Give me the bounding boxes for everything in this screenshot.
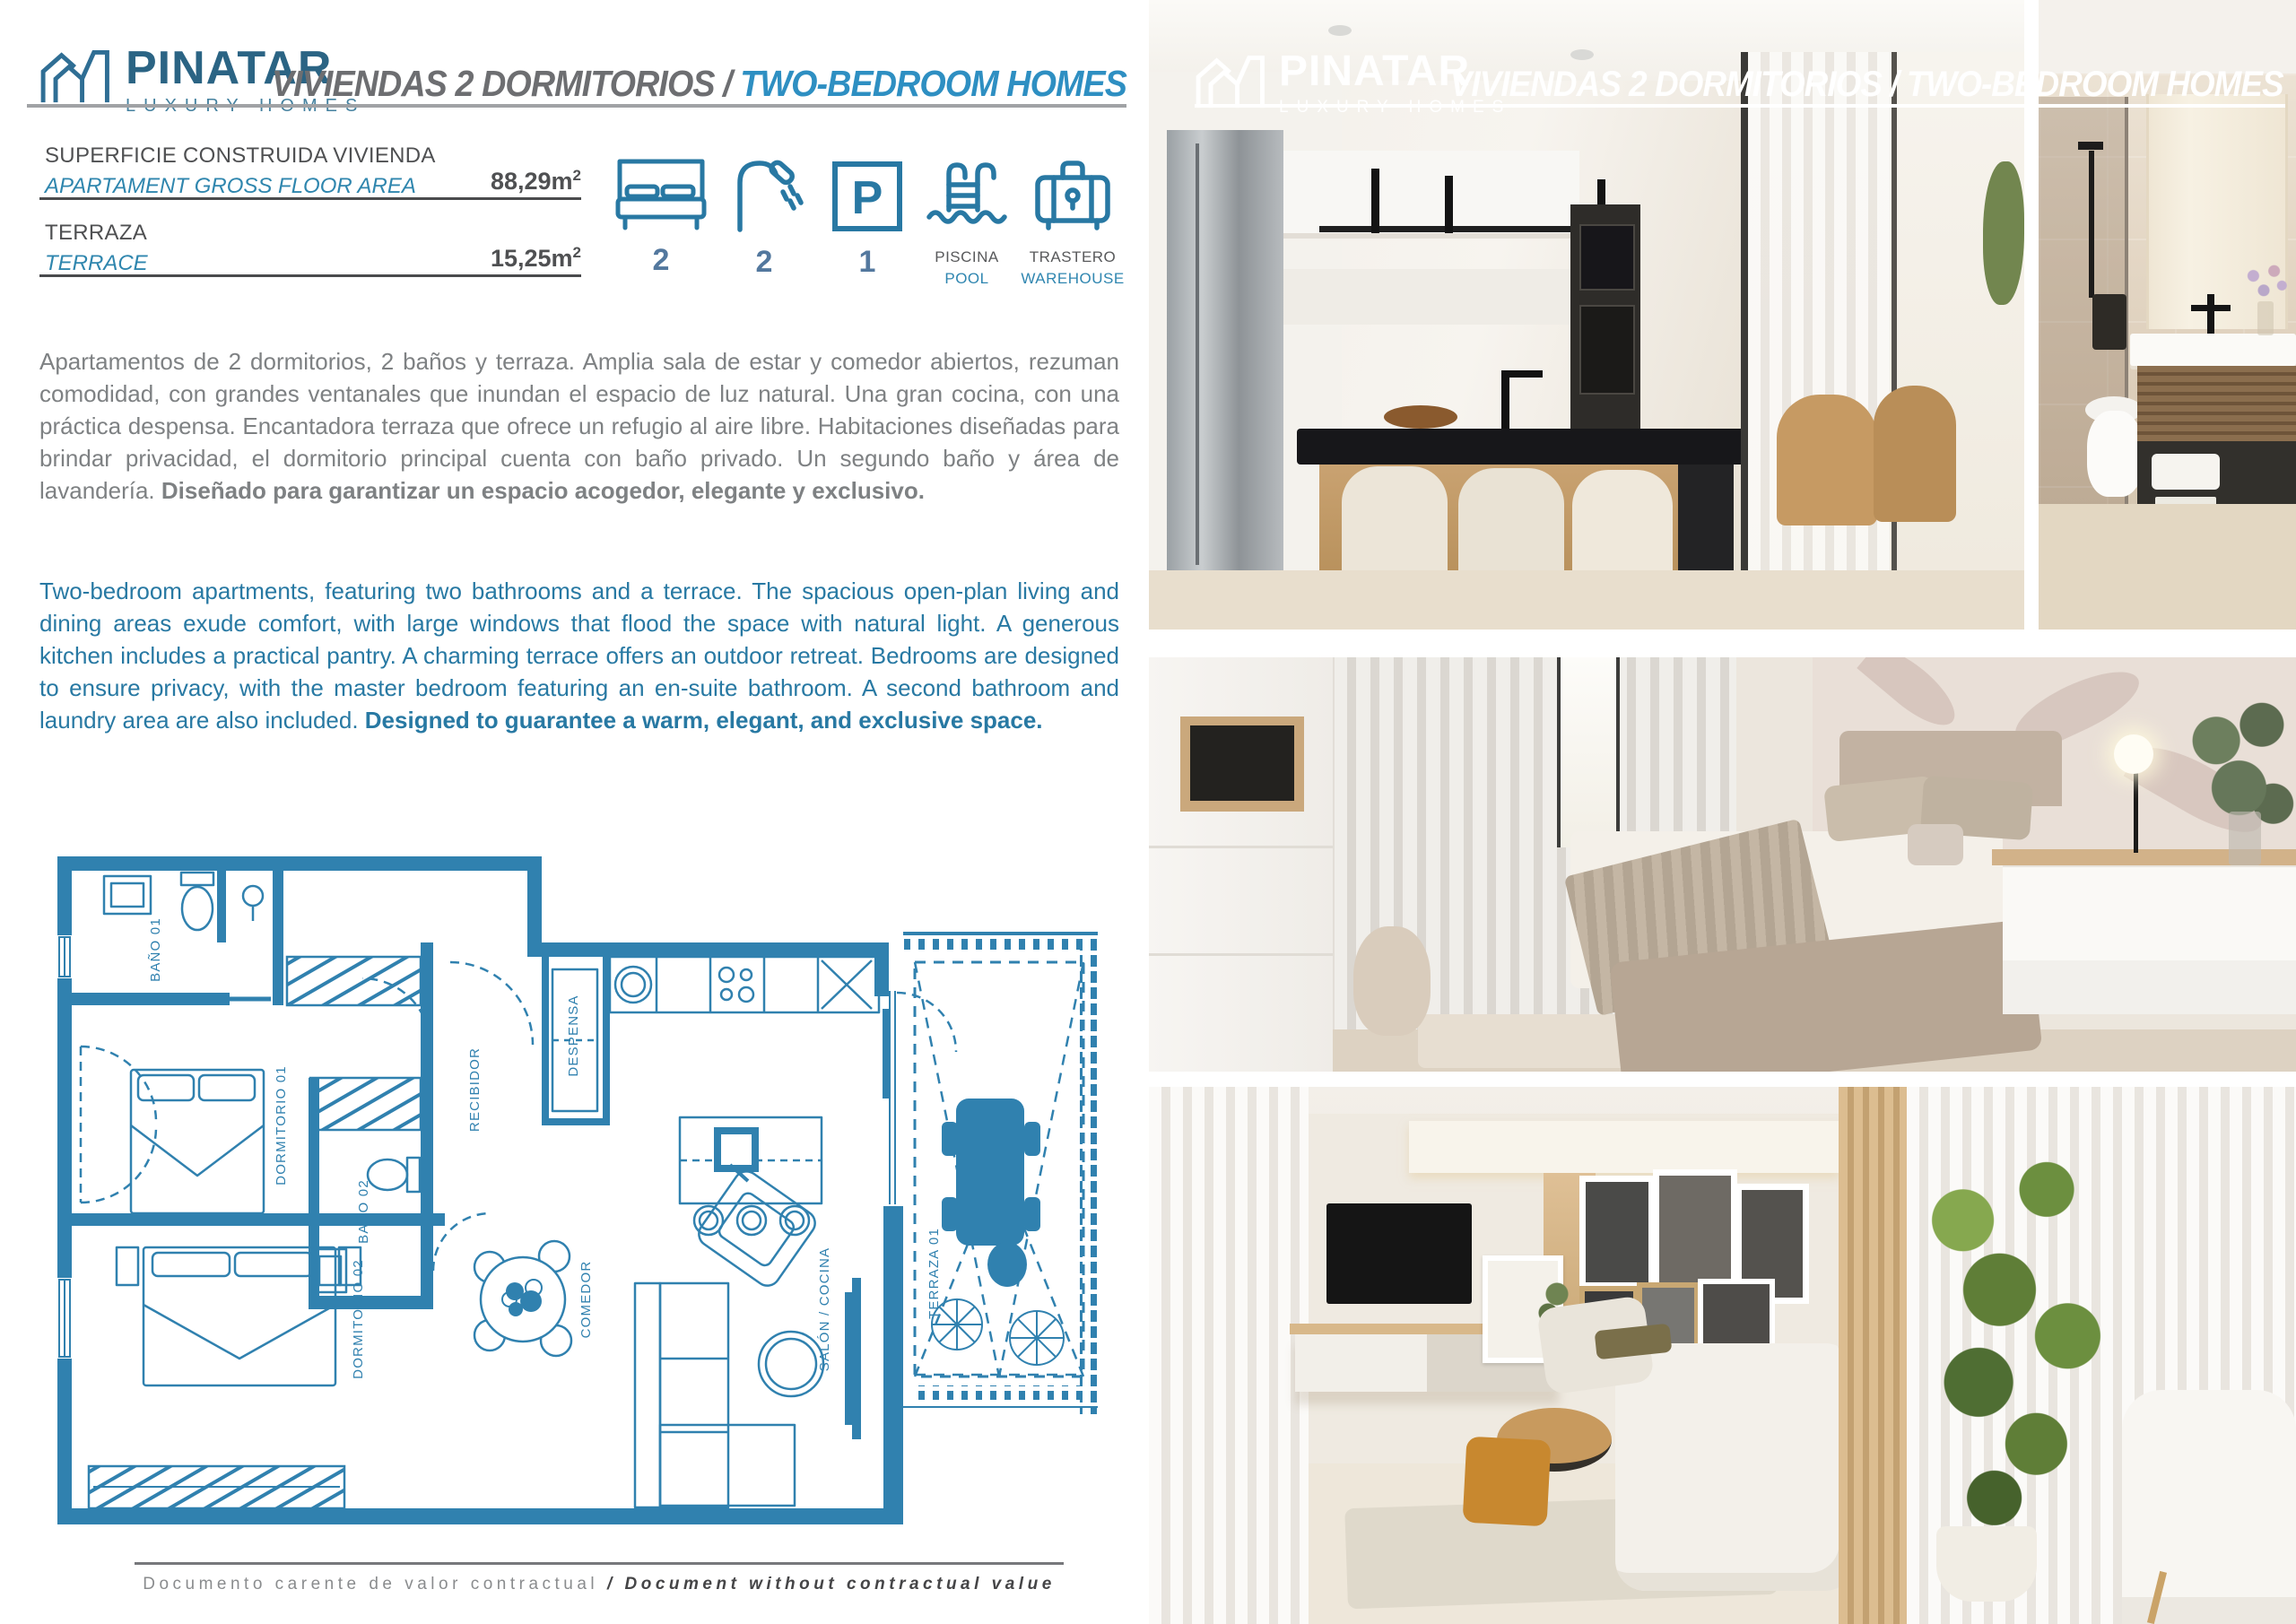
- warehouse-label-en: WAREHOUSE: [1019, 270, 1126, 288]
- logo-house-icon-white: [1195, 50, 1268, 109]
- bedroom-window: [1557, 657, 1620, 847]
- door-frame: [1892, 52, 1897, 630]
- plant-greenery: [1983, 161, 2024, 305]
- warehouse-label-es: TRASTERO: [1019, 248, 1126, 266]
- spec-rule-2: [39, 274, 581, 277]
- room-label-dorm1: DORMITORIO 01: [274, 1065, 289, 1185]
- room-label-salon: SALÓN / COCINA: [817, 1247, 832, 1372]
- header-rule: [27, 104, 1126, 108]
- dresser: [2003, 865, 2296, 1014]
- white-chair: [2122, 1390, 2296, 1624]
- description-spanish: Apartamentos de 2 dormitorios, 2 baños y…: [39, 346, 1119, 507]
- logo: [39, 45, 113, 109]
- feature-parking: P 1: [813, 160, 921, 280]
- towels: [2152, 454, 2220, 490]
- bathroom-floor: [2039, 504, 2296, 630]
- plan-walls: [57, 856, 1098, 1524]
- vanity-slat-drawer: [2137, 366, 2296, 441]
- floor-plan: BAÑO 01 DORMITORIO 01 DORMITORIO 02 BAÑO…: [39, 856, 1098, 1529]
- spec-label-es: SUPERFICIE CONSTRUIDA VIVIENDA: [45, 143, 583, 169]
- rail-bar: [1371, 169, 1379, 233]
- bedrooms-count: 2: [607, 243, 715, 278]
- bedroom-photo: [1149, 657, 2296, 1072]
- rail-bar: [1445, 176, 1453, 233]
- wardrobe-seam: [1149, 953, 1333, 956]
- faucet-spout: [1501, 370, 1543, 378]
- spec-rule-1: [39, 197, 581, 200]
- plant-pot: [1936, 1526, 2037, 1602]
- spec-label-es: TERRAZA: [45, 221, 583, 246]
- bedroom-vase: [2229, 812, 2261, 865]
- microwave: [1579, 224, 1635, 291]
- vanity-counter: [2130, 334, 2296, 366]
- room-label-comedor: COMEDOR: [578, 1261, 594, 1339]
- room-label-bano2: BAÑO 02: [356, 1179, 371, 1244]
- oven: [1579, 305, 1635, 395]
- room-label-bano1: BAÑO 01: [148, 917, 163, 982]
- feature-pool: PISCINA POOL: [913, 160, 1021, 288]
- gallery-frame: [1653, 1169, 1737, 1291]
- rattan-chair: [1777, 395, 1877, 525]
- footer-rule: [135, 1562, 1064, 1565]
- disclaimer-es: Documento carente de valor contractual: [143, 1575, 598, 1594]
- door-frame: [1741, 52, 1748, 630]
- fridge-handle: [1196, 143, 1199, 565]
- fiddle-leaf-plant: [1884, 1159, 2146, 1544]
- bedroom-tv: [1190, 725, 1294, 801]
- flowers: [2238, 256, 2290, 305]
- ceiling-spot: [1328, 25, 1352, 36]
- svg-text:P: P: [852, 172, 883, 224]
- pouf: [1353, 926, 1431, 1036]
- rattan-chair: [1874, 386, 1956, 522]
- description-english: Two-bedroom apartments, featuring two ba…: [39, 576, 1119, 736]
- living-curtain-left: [1149, 1087, 1309, 1624]
- wardrobe-seam: [1149, 846, 1333, 848]
- plan-fixtures: [93, 873, 879, 1507]
- fridge: [1167, 130, 1283, 583]
- room-label-terraza: TERRAZA 01: [926, 1228, 942, 1319]
- toilet: [2087, 411, 2143, 497]
- basin-faucet-spout: [2191, 305, 2231, 311]
- brochure-page: PINATAR LUXURY HOMES VIVIENDAS 2 DORMITO…: [0, 0, 2296, 1624]
- room-label-despensa: DESPENSA: [566, 994, 581, 1076]
- cove-light: [1409, 1121, 1839, 1173]
- page-title: VIVIENDAS 2 DORMITORIOS / TWO-BEDROOM HO…: [272, 63, 1126, 105]
- page-title-es: VIVIENDAS 2 DORMITORIOS: [272, 63, 715, 104]
- pool-icon: [926, 160, 1008, 231]
- faucet: [1501, 370, 1509, 433]
- disclaimer-en: Document without contractual value: [625, 1575, 1056, 1594]
- logo-house-icon: [39, 45, 113, 104]
- living-tv: [1326, 1203, 1472, 1304]
- footer-disclaimer: Documento carente de valor contractual /…: [135, 1575, 1064, 1594]
- pool-label-en: POOL: [913, 270, 1021, 288]
- feature-bathrooms: 2: [710, 154, 818, 280]
- overlay-title: VIVIENDAS 2 DORMITORIOS / TWO-BEDROOM HO…: [1450, 65, 2283, 105]
- feature-warehouse: TRASTERO WAREHOUSE: [1019, 158, 1126, 288]
- sofa: [1615, 1343, 1856, 1591]
- parking-count: 1: [813, 245, 921, 280]
- pool-label-es: PISCINA: [913, 248, 1021, 266]
- mustard-pouf: [1463, 1437, 1552, 1527]
- spec-value-1: 88,29m2: [45, 167, 581, 195]
- fruit-bowl: [1384, 405, 1457, 429]
- sheer-curtain: [1748, 52, 1890, 626]
- basin-faucet: [2207, 294, 2214, 335]
- shower-fixture: [2089, 151, 2094, 298]
- gallery-frame: [1579, 1176, 1655, 1289]
- shower-head: [2078, 142, 2103, 150]
- cushion: [1908, 824, 1963, 865]
- vase: [2257, 301, 2274, 335]
- overlay-rule: [1195, 104, 2285, 108]
- feature-bedrooms: 2: [607, 158, 715, 278]
- lamp-globe: [2114, 734, 2153, 774]
- bathrooms-count: 2: [710, 245, 818, 280]
- warehouse-icon: [1031, 158, 1115, 231]
- page-title-en: TWO-BEDROOM HOMES: [740, 63, 1126, 104]
- bathroom-ceiling: [2039, 0, 2296, 74]
- bed-icon: [614, 158, 708, 231]
- ceiling-spot: [1570, 49, 1594, 60]
- spec-value-2: 15,25m2: [45, 244, 581, 273]
- backsplash: [1283, 269, 1575, 325]
- island-countertop: [1297, 429, 1750, 465]
- kitchen-floor: [1149, 570, 2024, 630]
- flush-plate: [2092, 294, 2126, 350]
- parking-icon: P: [831, 160, 904, 233]
- floor-plan-drawing: BAÑO 01 DORMITORIO 01 DORMITORIO 02 BAÑO…: [39, 856, 1098, 1524]
- room-label-dorm2: DORMITORIO 02: [351, 1259, 366, 1379]
- shower-icon: [724, 154, 804, 233]
- room-label-recibidor: RECIBIDOR: [467, 1047, 483, 1132]
- living-room-photo: [1149, 1087, 2296, 1624]
- plan-terrace-plants: [932, 1299, 1064, 1365]
